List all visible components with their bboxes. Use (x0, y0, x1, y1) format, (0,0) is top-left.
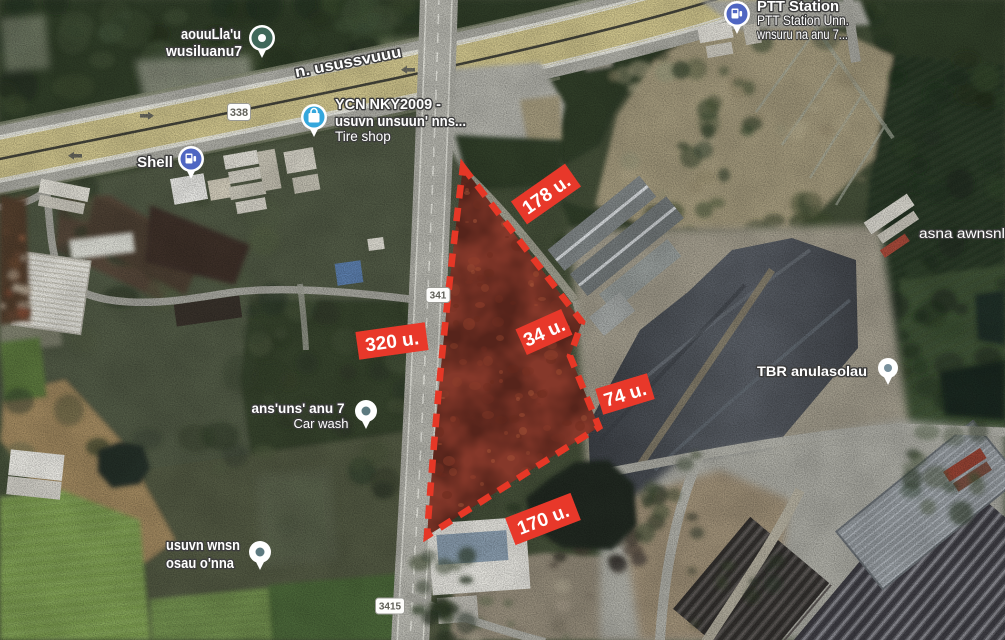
svg-text:YCN NKY2009 -: YCN NKY2009 - (335, 96, 441, 113)
svg-text:usuvn unsuun' nns...: usuvn unsuun' nns... (335, 113, 466, 130)
svg-text:Tire shop: Tire shop (335, 129, 391, 144)
svg-text:asna awnsnl: asna awnsnl (919, 226, 1005, 241)
svg-text:Shell: Shell (137, 154, 173, 171)
svg-text:osau o'nna: osau o'nna (166, 556, 235, 572)
svg-text:wnsuru na anu 7...: wnsuru na anu 7... (756, 27, 848, 42)
svg-text:341: 341 (430, 291, 447, 302)
svg-text:Car wash: Car wash (294, 416, 349, 431)
svg-text:aouuLla'u: aouuLla'u (181, 26, 241, 43)
svg-text:wusiluanu7: wusiluanu7 (165, 43, 242, 60)
svg-text:3415: 3415 (379, 602, 402, 613)
svg-text:usuvn wnsn: usuvn wnsn (166, 538, 240, 554)
svg-text:TBR anulasolau: TBR anulasolau (757, 363, 867, 379)
svg-text:PTT Station Unn.: PTT Station Unn. (757, 13, 849, 28)
svg-text:338: 338 (230, 107, 248, 119)
svg-text:ans'uns' anu 7: ans'uns' anu 7 (252, 400, 345, 416)
